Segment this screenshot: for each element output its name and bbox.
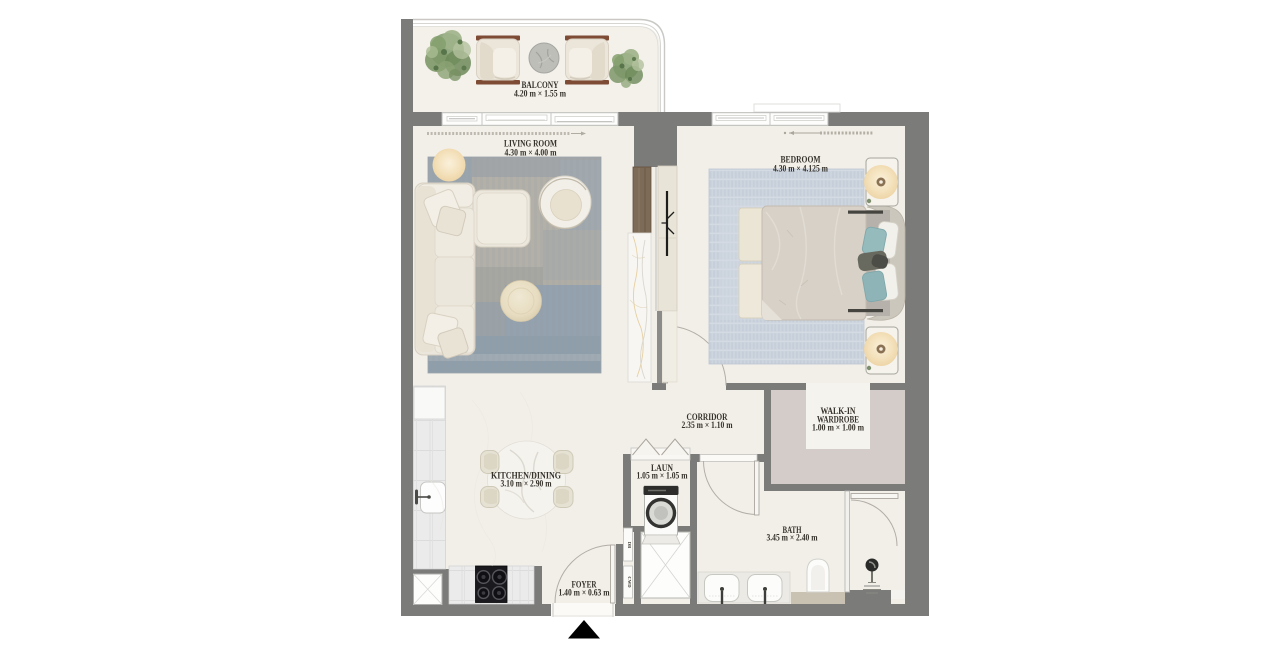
svg-text:4.20 m × 1.55 m: 4.20 m × 1.55 m	[514, 89, 566, 99]
svg-text:3.45 m × 2.40 m: 3.45 m × 2.40 m	[767, 533, 818, 543]
svg-text:CWD: CWD	[627, 576, 632, 588]
svg-text:3.10 m × 2.90 m: 3.10 m × 2.90 m	[501, 479, 552, 489]
svg-text:1.00 m × 1.00 m: 1.00 m × 1.00 m	[812, 423, 864, 433]
svg-text:1.40 m × 0.63 m: 1.40 m × 0.63 m	[559, 588, 610, 598]
svg-text:DB: DB	[627, 542, 632, 548]
svg-text:4.30 m × 4.125 m: 4.30 m × 4.125 m	[773, 164, 828, 174]
svg-text:4.30 m × 4.00 m: 4.30 m × 4.00 m	[505, 148, 557, 158]
svg-text:1.05 m × 1.05 m: 1.05 m × 1.05 m	[637, 471, 688, 481]
svg-text:2.35 m × 1.10 m: 2.35 m × 1.10 m	[682, 420, 733, 430]
